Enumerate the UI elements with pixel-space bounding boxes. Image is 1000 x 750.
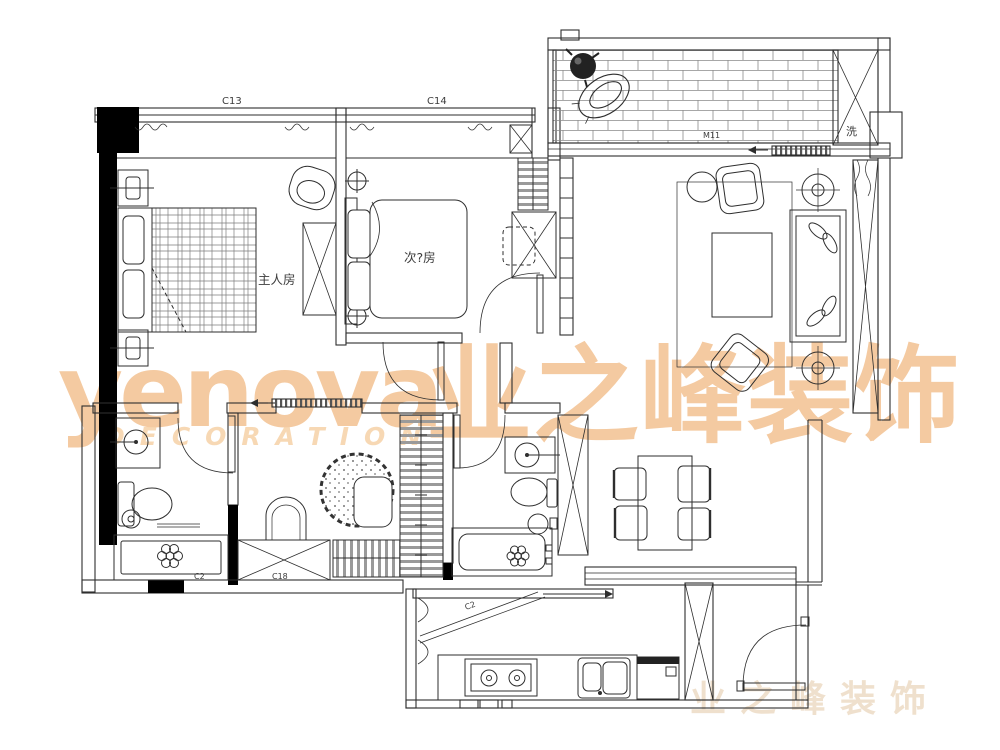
floor-lamp	[796, 168, 840, 212]
floor-lamp	[796, 346, 840, 390]
label-window-c13: C13	[222, 96, 242, 107]
curtain-line	[855, 160, 871, 196]
label-window-c18: C18	[272, 572, 288, 581]
second-bedroom	[345, 125, 556, 333]
floor-plan-page: yenova DECORATION 业之峰装饰 业之峰装饰	[0, 0, 1000, 750]
dining-table	[638, 456, 692, 550]
dining-chair	[614, 468, 646, 500]
coffee-table	[712, 233, 772, 317]
label-laundry: 洗	[846, 125, 857, 138]
dining-chair	[615, 506, 647, 540]
bathroom-2	[452, 415, 560, 576]
rug	[677, 182, 792, 367]
second-bedroom-door	[480, 273, 543, 333]
floor-drain	[158, 545, 183, 568]
label-window-c2: C2	[194, 572, 205, 581]
master-wardrobe	[303, 223, 336, 315]
entry-door	[737, 617, 809, 691]
corridor-door	[383, 342, 444, 400]
armchair	[715, 162, 765, 215]
toilet	[511, 478, 557, 534]
door	[454, 415, 505, 468]
floor-plan-drawing: C13 C14 M11 洗 主人房 次?房 C2 C18 C2	[0, 0, 1000, 750]
master-bed	[118, 208, 256, 332]
toilet	[118, 482, 200, 528]
fridge	[637, 657, 679, 699]
folding-door	[418, 592, 545, 664]
label-window-c14: C14	[427, 96, 447, 107]
stove	[465, 659, 537, 696]
kitchen	[418, 592, 679, 700]
dining-chair	[678, 508, 710, 540]
label-door-m11: M11	[703, 131, 720, 140]
entry	[737, 617, 809, 691]
label-master-bedroom: 主人房	[258, 272, 296, 287]
dining-chair	[678, 466, 710, 502]
side-table	[687, 172, 717, 202]
label-kitchen-door: C2	[464, 600, 477, 612]
dressing-room	[238, 415, 443, 580]
sink	[110, 418, 160, 468]
round-rug-and-seat	[321, 454, 393, 527]
label-second-bedroom: 次?房	[404, 250, 436, 265]
master-bedroom	[110, 124, 492, 366]
bathroom-1	[110, 416, 235, 580]
master-armchair	[285, 162, 339, 214]
sofa	[790, 210, 846, 342]
living-room	[677, 160, 871, 395]
armchair	[708, 330, 773, 395]
bathtub	[452, 528, 552, 576]
hallway	[383, 342, 444, 400]
tub-drain	[507, 546, 529, 566]
ceiling-mark	[345, 169, 369, 193]
door	[178, 416, 235, 473]
sink	[505, 437, 560, 473]
chair	[266, 497, 306, 540]
curtain-line	[135, 124, 492, 130]
bay-window-c2	[114, 535, 228, 580]
kitchen-sink	[578, 658, 630, 698]
dining-room	[558, 415, 710, 555]
